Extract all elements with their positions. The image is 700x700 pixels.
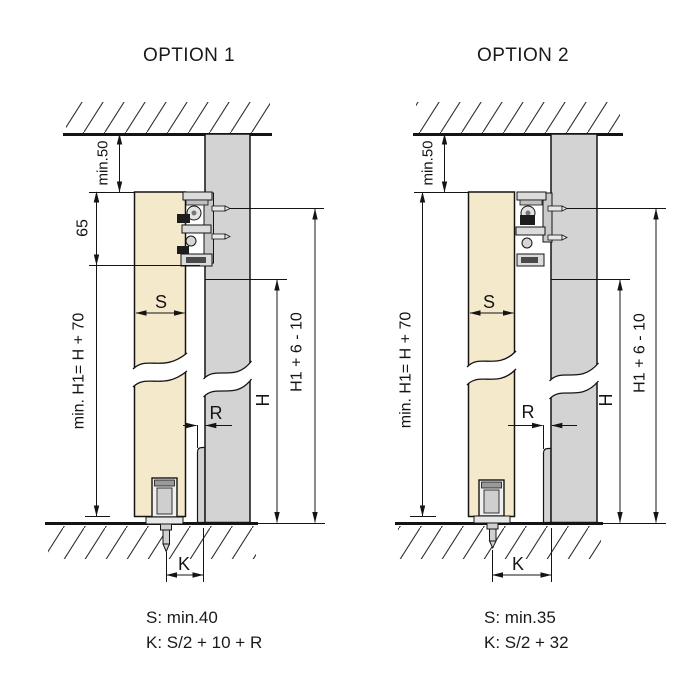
dim-label-mechanism-height: 65: [75, 219, 92, 237]
option1-diagram: min.50 65 min. H1= H + 70 S R H H1 + 6 -…: [45, 102, 325, 582]
dim-label-profile-offset: R: [522, 402, 535, 422]
option2-door-panel: [469, 192, 515, 517]
option2-formula-k: K: S/2 + 32: [484, 630, 569, 655]
dim-label-opening-height: H: [253, 394, 273, 407]
dim-label-ceiling-gap: min.50: [95, 140, 112, 185]
dim-label-opening-height: H: [596, 394, 616, 407]
dim-label-bottom-distance: K: [512, 554, 524, 574]
option2-formula-s: S: min.35: [484, 605, 569, 630]
guide-pin: [163, 530, 170, 544]
technical-drawing: min.50 65 min. H1= H + 70 S R H H1 + 6 -…: [0, 0, 700, 700]
option1-formula-s: S: min.40: [146, 605, 262, 630]
dim-label-ceiling-gap: min.50: [420, 140, 437, 185]
dim-label-min-total-height: min. H1= H + 70: [71, 313, 88, 430]
option1-floor-profile: [198, 448, 205, 523]
dim-label-panel-height: H1 + 6 - 10: [632, 313, 649, 393]
option2-formulas: S: min.35 K: S/2 + 32: [484, 605, 569, 655]
option2-floor-profile: [544, 449, 551, 523]
option1-dimension-labels: min.50 65 min. H1= H + 70 S R H H1 + 6 -…: [71, 140, 306, 574]
diagram-canvas: OPTION 1 OPTION 2: [0, 0, 700, 700]
dim-label-bottom-distance: K: [178, 554, 190, 574]
option2-wall-panel: [551, 134, 597, 523]
wall-bolt: [548, 235, 562, 240]
guide-pin: [490, 529, 497, 541]
option1-formula-k: K: S/2 + 10 + R: [146, 630, 262, 655]
wall-bolt: [212, 206, 225, 211]
floor-hatch: [48, 526, 256, 559]
dim-label-door-thickness: S: [483, 292, 495, 312]
option2-diagram: min.50 min. H1= H + 70 S R H H1 + 6 - 10…: [395, 102, 666, 582]
option1-formulas: S: min.40 K: S/2 + 10 + R: [146, 605, 262, 655]
fixing-screw: [177, 246, 189, 254]
dim-label-profile-offset: R: [210, 403, 223, 423]
wall-bolt: [548, 206, 562, 211]
option1-door-panel: [135, 192, 186, 517]
dim-label-panel-height: H1 + 6 - 10: [289, 312, 306, 392]
wall-bolt: [212, 234, 225, 239]
floor-hatch: [398, 526, 601, 559]
ceiling-hatch: [66, 102, 270, 133]
dim-label-door-thickness: S: [155, 292, 167, 312]
fixing-screw: [520, 215, 535, 225]
dim-label-min-total-height: min. H1= H + 70: [398, 312, 415, 429]
fixing-screw: [177, 214, 190, 223]
ceiling-hatch: [416, 102, 620, 133]
option2-dimension-labels: min.50 min. H1= H + 70 S R H H1 + 6 - 10…: [398, 140, 649, 574]
